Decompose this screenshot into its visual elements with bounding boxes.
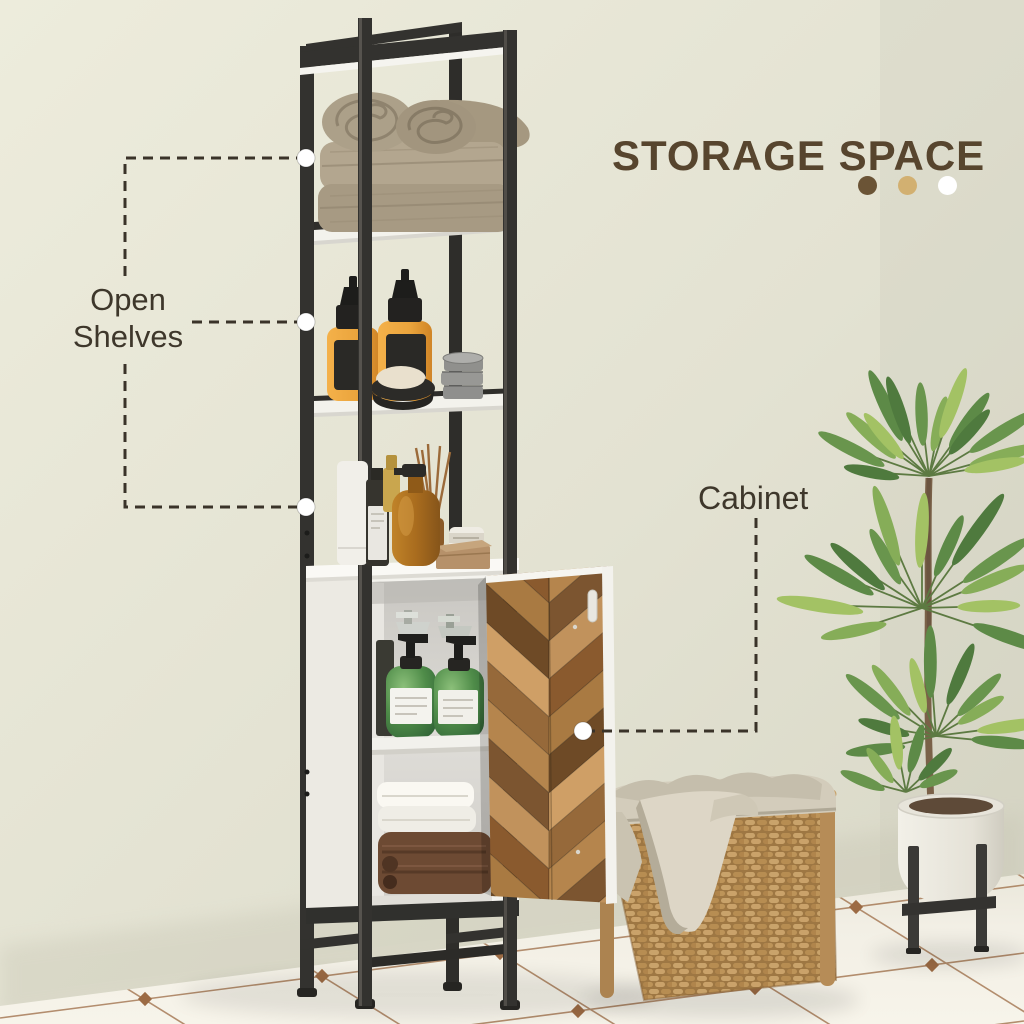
palette-dot-dark-brown <box>858 176 877 195</box>
brown-towel <box>378 832 492 894</box>
anchor-dot-shelf-top <box>297 149 315 167</box>
page-title: STORAGE SPACE <box>612 132 1012 180</box>
palette-dots <box>858 176 957 195</box>
palette-dot-tan <box>898 176 917 195</box>
anchor-dot-shelf-bottom <box>297 498 315 516</box>
open-shelves-label: Open Shelves <box>28 281 228 355</box>
metal-tins <box>441 353 483 400</box>
cosmetic-tube <box>337 461 368 565</box>
anchor-dot-shelf-middle <box>297 313 315 331</box>
anchor-dot-cabinet-door <box>574 722 592 740</box>
open-shelves-label-line1: Open <box>28 281 228 318</box>
cabinet-label: Cabinet <box>698 480 808 517</box>
product-marketing-image: STORAGE SPACE Open Shelves Cabinet <box>0 0 1024 1024</box>
door-handle-recess <box>588 590 597 622</box>
open-shelves-label-line2: Shelves <box>28 318 228 355</box>
palette-dot-white <box>938 176 957 195</box>
white-towels <box>377 782 476 832</box>
